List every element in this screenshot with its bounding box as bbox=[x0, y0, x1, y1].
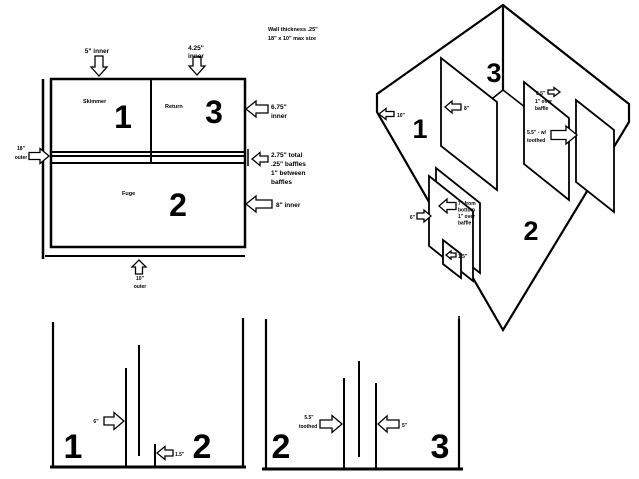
plan-top-dim-2-line2: inner bbox=[188, 53, 204, 60]
iso-over-baffle-line1: 6.5" bbox=[536, 91, 546, 97]
plan-compartment-2-label: Fuge bbox=[122, 191, 135, 197]
iso-toothed-baffle-line1: 5.5" - w/ bbox=[527, 130, 547, 136]
iso-compartment-2-number: 2 bbox=[523, 216, 538, 246]
iso-baffle-6-dim: 6" bbox=[410, 215, 416, 221]
iso-compartment-1-number: 1 bbox=[412, 114, 427, 144]
plan-dim-arrow-left-8in-icon bbox=[246, 196, 272, 212]
plan-baffle-note-line4: baffles bbox=[271, 179, 292, 186]
iso-float-baffle-line4: baffle bbox=[458, 221, 472, 227]
elevl-arrow-left-15in-icon bbox=[157, 447, 173, 460]
iso-divider-dim: 8" bbox=[464, 106, 470, 112]
plan-bottom-dim-line2: outer bbox=[134, 284, 147, 290]
plan-dim-arrow-up-10in-icon bbox=[132, 260, 146, 274]
plan-top-dim-1: 5" inner bbox=[85, 48, 110, 55]
iso-float-baffle-line3: 1" over bbox=[458, 214, 475, 220]
plan-view: 5" inner 4.25" inner 6.75" inner 18" out… bbox=[15, 45, 307, 290]
elevr-compartment-2-number: 2 bbox=[272, 428, 291, 466]
sump-baffle-diagram: Wall thickness .25" 18" x 10" max size 5… bbox=[0, 0, 639, 479]
iso-left-wall-dim: 10" bbox=[397, 113, 406, 119]
elevr-arrow-right-55in-icon bbox=[320, 416, 342, 433]
plan-right-dim-1-line2: inner bbox=[271, 113, 287, 120]
plan-left-dim-line2: outer bbox=[15, 155, 28, 161]
iso-baffle-15-dim: 1.5" bbox=[458, 254, 468, 260]
elevl-compartment-2-number: 2 bbox=[193, 428, 212, 466]
iso-compartment-3-number: 3 bbox=[486, 58, 501, 88]
plan-dim-arrow-right-18in-icon bbox=[29, 149, 49, 164]
iso-over-baffle-line3: baffle bbox=[535, 106, 549, 112]
plan-baffle-note-line1: 2.75" total bbox=[271, 152, 302, 159]
plan-compartment-3-label: Return bbox=[165, 104, 183, 110]
elevr-toothed-line1: 5.5" bbox=[304, 415, 314, 421]
plan-right-dim-2: 8" inner bbox=[276, 202, 301, 209]
iso-float-baffle-line2: bottom bbox=[458, 208, 475, 214]
plan-bottom-dim-line1: 10" bbox=[136, 276, 145, 282]
elevr-arrow-left-5in-icon bbox=[378, 416, 399, 432]
elevr-baffle-5-dim: 5" bbox=[402, 423, 408, 429]
elevation-left-view: 6" 1.5" 1 2 bbox=[50, 318, 246, 467]
elevation-right-view: 5.5" toothed 5" 2 3 bbox=[262, 319, 463, 469]
plan-compartment-3-number: 3 bbox=[205, 94, 223, 130]
notes-block: Wall thickness .25" 18" x 10" max size bbox=[268, 27, 318, 42]
elevl-baffle-15-dim: 1.5" bbox=[175, 452, 185, 458]
iso-toothed-baffle-plane bbox=[576, 100, 614, 212]
elevr-compartment-3-number: 3 bbox=[431, 428, 450, 466]
plan-top-dim-2-line1: 4.25" bbox=[188, 45, 204, 52]
plan-compartment-1-label: Skimmer bbox=[83, 99, 107, 105]
elevl-compartment-1-number: 1 bbox=[64, 428, 83, 466]
plan-baffle-note-line2: .25" baffles bbox=[271, 161, 306, 168]
plan-compartment-1-number: 1 bbox=[114, 99, 132, 135]
plan-compartment-2-number: 2 bbox=[169, 187, 187, 223]
elevr-toothed-line2: toothed bbox=[299, 424, 317, 430]
iso-float-baffle-line1: 7" from bbox=[458, 201, 476, 207]
iso-toothed-baffle-line2: toothed bbox=[527, 138, 545, 144]
plan-right-dim-1-line1: 6.75" bbox=[271, 104, 287, 111]
iso-view: 10" 8" 6.5" 1" over baffle 5.5" - w/ too… bbox=[377, 5, 629, 338]
iso-over-baffle-line2: 1" over bbox=[535, 99, 552, 105]
diagram-svg: Wall thickness .25" 18" x 10" max size 5… bbox=[0, 0, 639, 479]
plan-left-dim-line1: 18" bbox=[17, 146, 26, 152]
elevl-baffle-6-dim: 6" bbox=[93, 419, 99, 425]
plan-dim-arrow-left-baffles-icon bbox=[252, 153, 268, 166]
plan-dim-arrow-left-675in-icon bbox=[246, 101, 268, 117]
iso-arrow-right-65in-icon bbox=[548, 88, 560, 97]
plan-baffle-note-line3: 1" between bbox=[271, 170, 306, 177]
elevl-arrow-right-6in-icon bbox=[104, 413, 124, 430]
note-wall-thickness: Wall thickness .25" bbox=[268, 27, 318, 33]
note-max-size: 18" x 10" max size bbox=[268, 36, 316, 42]
plan-dim-arrow-down-5in-icon bbox=[91, 56, 107, 76]
